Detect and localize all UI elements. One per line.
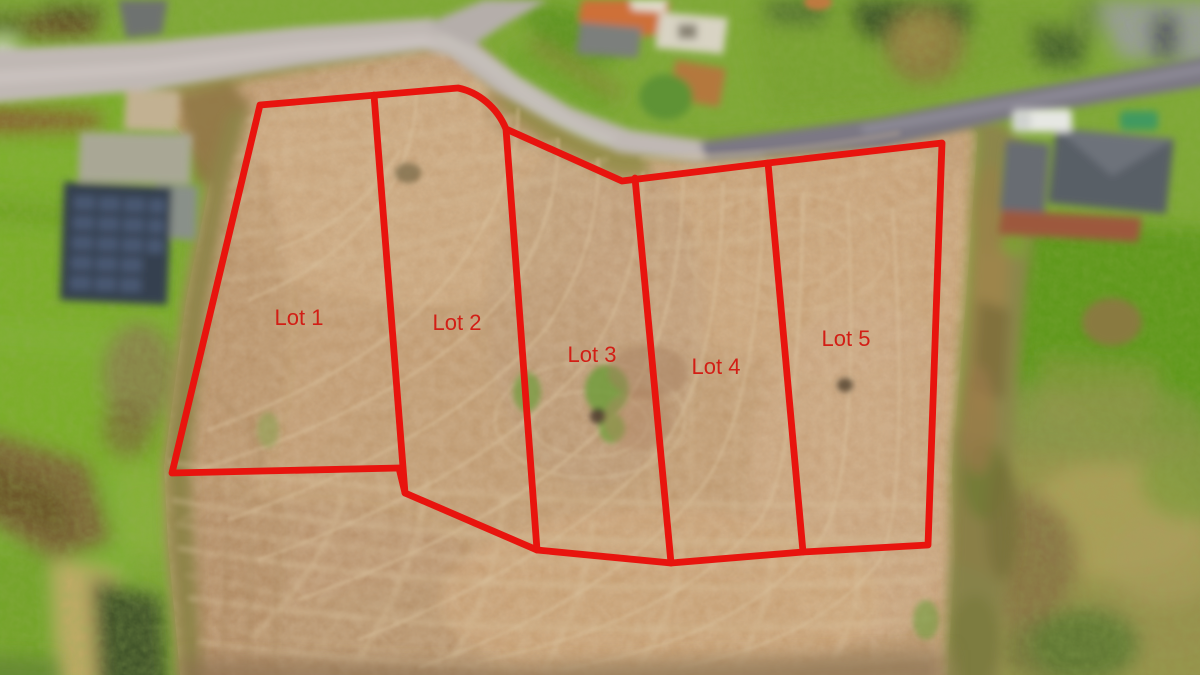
svg-text:Lot 5: Lot 5 — [822, 326, 871, 351]
svg-text:Lot 2: Lot 2 — [433, 310, 482, 335]
svg-text:Lot 4: Lot 4 — [692, 354, 741, 379]
svg-text:Lot 1: Lot 1 — [275, 305, 324, 330]
svg-text:Lot 3: Lot 3 — [568, 342, 617, 367]
